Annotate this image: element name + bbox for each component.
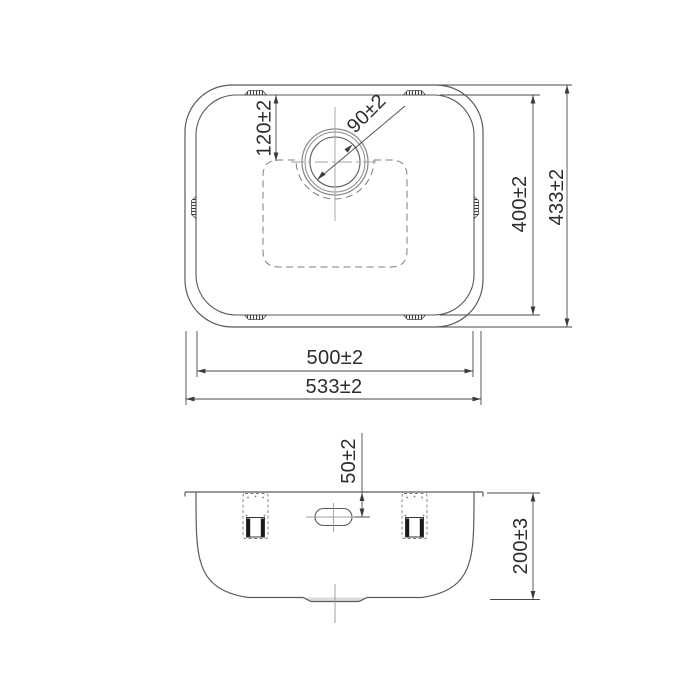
- front-view: 50±2 200±3: [185, 433, 540, 623]
- arrowhead: [531, 591, 536, 600]
- arrowhead: [531, 95, 536, 104]
- arrowhead: [186, 397, 195, 402]
- clip-dot: [262, 497, 264, 499]
- clip-mark-top-right: [404, 91, 426, 96]
- front-clip-right: [402, 494, 427, 539]
- dim-label-bowl-depth: 200±3: [510, 518, 532, 575]
- dim-overflow-offset: 50±2: [338, 433, 370, 517]
- clip-bracket-bar: [247, 519, 250, 537]
- arrowhead: [318, 171, 326, 179]
- clip-dot: [406, 497, 408, 499]
- dim-drain-diameter: 90±2: [318, 90, 406, 180]
- dim-label-drain-offset: 120±2: [254, 100, 276, 157]
- arrowhead: [465, 369, 474, 374]
- arrowhead: [197, 369, 206, 374]
- clip-dot: [421, 497, 423, 499]
- arrowhead: [565, 319, 570, 328]
- dim-label-bowl-width: 500±2: [307, 347, 364, 369]
- clip-mark-bottom-right: [404, 315, 426, 320]
- dim-bowl-width: 500±2: [197, 331, 473, 377]
- overflow-hole: [306, 503, 370, 532]
- plan-outer-flange: [185, 85, 483, 327]
- clip-bracket-bar: [406, 519, 409, 537]
- clip-dot: [414, 496, 416, 498]
- arrowhead: [473, 397, 482, 402]
- clip-mark-right: [474, 197, 479, 219]
- clip-bracket-bar: [420, 519, 423, 537]
- dim-bowl-length: 400±2: [440, 95, 540, 315]
- clip-mark-left: [192, 197, 197, 219]
- dim-label-overflow-offset: 50±2: [338, 438, 360, 484]
- clip-dot: [247, 497, 249, 499]
- plan-view: 120±2 90±2 400±2 433±2: [185, 85, 572, 405]
- arrowhead: [360, 509, 365, 518]
- arrowhead: [531, 307, 536, 316]
- clip-dot: [255, 496, 257, 498]
- dim-overall-length: 433±2: [437, 85, 572, 327]
- clip-dot: [405, 515, 407, 517]
- clip-bracket-bar: [261, 519, 264, 537]
- dim-label-bowl-length: 400±2: [509, 176, 531, 233]
- clip-mark-top-left: [245, 91, 267, 96]
- drawing-canvas: 120±2 90±2 400±2 433±2: [0, 0, 700, 700]
- dim-label-drain-diameter: 90±2: [343, 90, 391, 138]
- dim-bowl-depth: 200±3: [487, 493, 540, 600]
- clip-dot: [423, 515, 425, 517]
- dim-label-overall-length: 433±2: [546, 169, 568, 226]
- dim-drain-offset: 120±2: [254, 95, 279, 161]
- clip-dot: [246, 515, 248, 517]
- dim-label-overall-width: 533±2: [306, 376, 363, 398]
- sink-technical-drawing: 120±2 90±2 400±2 433±2: [0, 0, 700, 700]
- front-clip-left: [243, 494, 268, 539]
- front-rim-line: [185, 492, 483, 497]
- arrowhead: [531, 493, 536, 502]
- clip-mark-bottom-left: [245, 315, 267, 320]
- arrowhead: [360, 493, 365, 502]
- arrowhead: [565, 85, 570, 94]
- clip-dot: [264, 515, 266, 517]
